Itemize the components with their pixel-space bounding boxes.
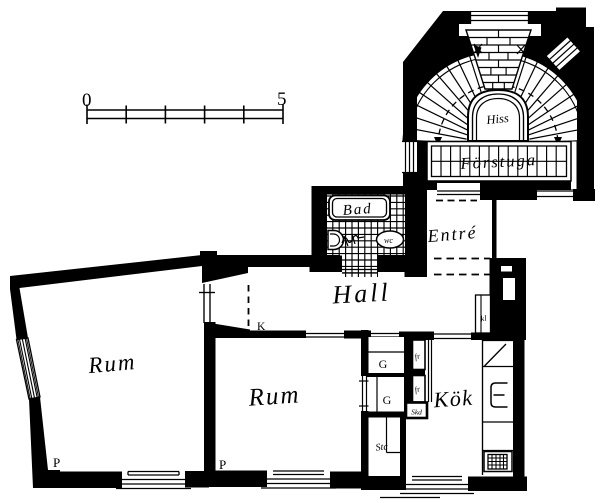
svg-text:P: P — [219, 457, 226, 472]
svg-text:G: G — [383, 393, 392, 407]
svg-text:P: P — [53, 455, 60, 470]
svg-text:G: G — [379, 357, 388, 371]
svg-text:Skd: Skd — [411, 408, 422, 417]
svg-text:Hall: Hall — [331, 278, 392, 310]
svg-text:Rum: Rum — [86, 349, 137, 378]
svg-text:Förstuga: Förstuga — [459, 150, 537, 173]
svg-text:5: 5 — [277, 89, 287, 110]
svg-text:Rum: Rum — [247, 381, 302, 412]
svg-text:0: 0 — [82, 90, 92, 111]
svg-text:Hiss: Hiss — [485, 111, 510, 127]
svg-text:Kök: Kök — [432, 385, 475, 413]
svg-text:wc: wc — [384, 236, 393, 245]
svg-text:Bad: Bad — [342, 201, 373, 219]
svg-text:Stc: Stc — [375, 441, 389, 453]
